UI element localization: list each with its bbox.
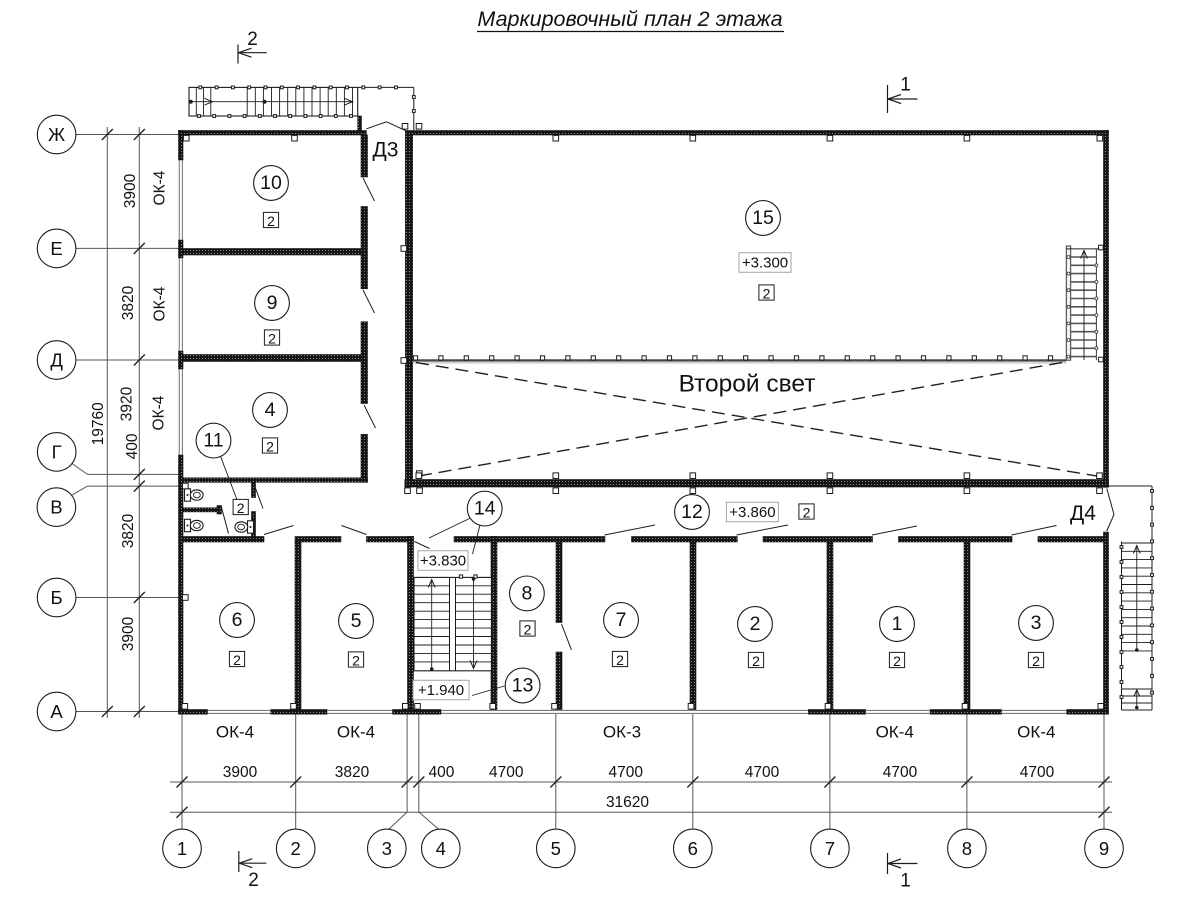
svg-text:ОК-4: ОК-4 xyxy=(152,170,169,205)
svg-text:2: 2 xyxy=(803,504,811,520)
svg-text:11: 11 xyxy=(203,430,223,452)
svg-text:19760: 19760 xyxy=(90,402,107,445)
svg-text:9: 9 xyxy=(1099,838,1109,859)
svg-text:3900: 3900 xyxy=(122,173,139,208)
svg-text:1: 1 xyxy=(177,838,187,859)
svg-text:2: 2 xyxy=(616,652,624,668)
svg-text:6: 6 xyxy=(688,838,698,859)
svg-text:5: 5 xyxy=(351,610,362,632)
svg-text:4: 4 xyxy=(436,838,446,859)
svg-text:+3.830: +3.830 xyxy=(420,553,466,570)
svg-text:Ж: Ж xyxy=(48,124,65,145)
svg-text:2: 2 xyxy=(266,438,274,454)
svg-text:7: 7 xyxy=(616,609,627,631)
svg-text:Д: Д xyxy=(50,350,63,371)
svg-text:Г: Г xyxy=(52,441,62,462)
svg-text:3820: 3820 xyxy=(335,764,370,781)
svg-text:2: 2 xyxy=(248,870,259,891)
svg-text:ОК-4: ОК-4 xyxy=(337,723,375,742)
svg-text:Второй свет: Второй свет xyxy=(679,371,816,398)
svg-text:3900: 3900 xyxy=(223,764,258,781)
svg-text:9: 9 xyxy=(267,292,278,314)
svg-text:3820: 3820 xyxy=(120,285,137,320)
svg-text:7: 7 xyxy=(825,838,835,859)
svg-text:4700: 4700 xyxy=(609,764,644,781)
svg-text:4700: 4700 xyxy=(489,764,524,781)
svg-text:3: 3 xyxy=(382,838,392,859)
svg-text:+3.860: +3.860 xyxy=(729,504,775,521)
svg-text:4700: 4700 xyxy=(1020,764,1055,781)
svg-text:5: 5 xyxy=(551,838,561,859)
svg-text:2: 2 xyxy=(237,500,245,516)
svg-text:ОК-3: ОК-3 xyxy=(603,723,641,742)
svg-text:2: 2 xyxy=(750,613,761,635)
svg-text:1: 1 xyxy=(900,75,911,96)
svg-text:+3.300: +3.300 xyxy=(742,255,788,272)
svg-text:31620: 31620 xyxy=(606,794,649,811)
svg-text:3900: 3900 xyxy=(120,616,137,651)
svg-text:+1.940: +1.940 xyxy=(418,682,464,699)
svg-text:3920: 3920 xyxy=(119,386,136,421)
svg-text:Д3: Д3 xyxy=(373,139,399,162)
svg-text:Е: Е xyxy=(50,238,62,259)
svg-text:2: 2 xyxy=(291,838,301,859)
svg-text:13: 13 xyxy=(512,675,534,697)
svg-text:Д4: Д4 xyxy=(1070,502,1096,525)
svg-text:2: 2 xyxy=(893,653,901,669)
svg-text:2: 2 xyxy=(268,330,276,346)
svg-text:2: 2 xyxy=(233,652,241,668)
svg-text:4700: 4700 xyxy=(745,764,780,781)
svg-text:2: 2 xyxy=(524,621,532,637)
svg-text:3: 3 xyxy=(1031,612,1042,634)
svg-text:2: 2 xyxy=(1032,653,1040,669)
svg-text:15: 15 xyxy=(752,207,774,229)
svg-text:8: 8 xyxy=(521,582,532,604)
svg-text:ОК-4: ОК-4 xyxy=(216,723,254,742)
svg-text:В: В xyxy=(50,497,62,518)
svg-text:10: 10 xyxy=(260,172,282,194)
svg-text:ОК-4: ОК-4 xyxy=(1017,723,1055,742)
svg-text:3820: 3820 xyxy=(120,513,137,548)
svg-text:2: 2 xyxy=(752,653,760,669)
svg-text:14: 14 xyxy=(474,498,496,520)
svg-text:ОК-4: ОК-4 xyxy=(152,286,169,321)
svg-text:400: 400 xyxy=(429,764,455,781)
svg-text:ОК-4: ОК-4 xyxy=(876,723,914,742)
svg-text:1: 1 xyxy=(900,871,911,892)
svg-text:2: 2 xyxy=(247,29,258,50)
svg-text:А: А xyxy=(50,701,63,722)
svg-text:2: 2 xyxy=(352,652,360,668)
svg-text:2: 2 xyxy=(763,285,771,301)
svg-text:ОК-4: ОК-4 xyxy=(151,395,168,430)
svg-text:4: 4 xyxy=(265,399,276,421)
svg-text:400: 400 xyxy=(124,433,141,459)
svg-text:6: 6 xyxy=(232,609,243,631)
svg-text:4700: 4700 xyxy=(883,764,918,781)
svg-text:Б: Б xyxy=(51,587,63,608)
svg-text:2: 2 xyxy=(267,213,275,229)
svg-text:Маркировочный план 2 этажа: Маркировочный план 2 этажа xyxy=(477,7,782,31)
svg-text:8: 8 xyxy=(962,838,972,859)
svg-text:1: 1 xyxy=(892,613,903,635)
svg-text:12: 12 xyxy=(681,501,703,523)
